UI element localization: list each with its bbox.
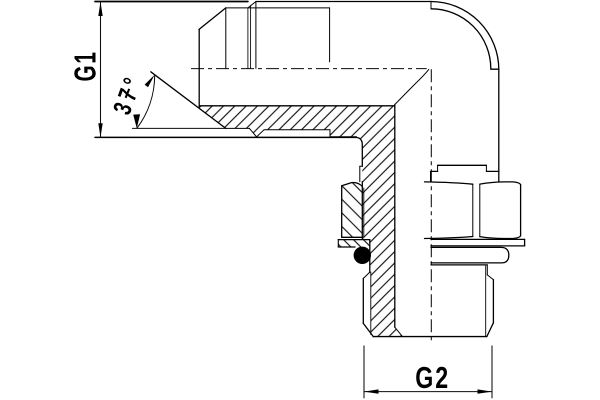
svg-text:G1: G1 <box>67 50 102 81</box>
svg-text:G2: G2 <box>415 360 450 395</box>
